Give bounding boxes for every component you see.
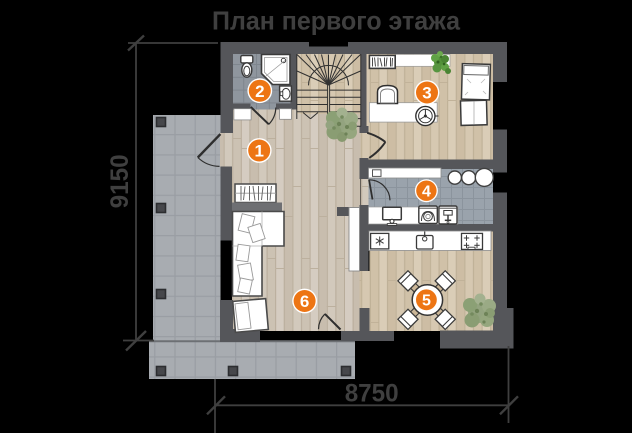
svg-text:1: 1 [254, 142, 263, 161]
svg-text:4: 4 [422, 184, 431, 201]
svg-text:6: 6 [300, 292, 309, 311]
svg-text:9150: 9150 [106, 154, 134, 208]
svg-text:3: 3 [422, 84, 431, 103]
svg-text:План первого этажа: План первого этажа [212, 6, 461, 36]
svg-text:5: 5 [422, 293, 431, 310]
svg-text:2: 2 [255, 82, 264, 101]
svg-text:8750: 8750 [345, 380, 399, 408]
